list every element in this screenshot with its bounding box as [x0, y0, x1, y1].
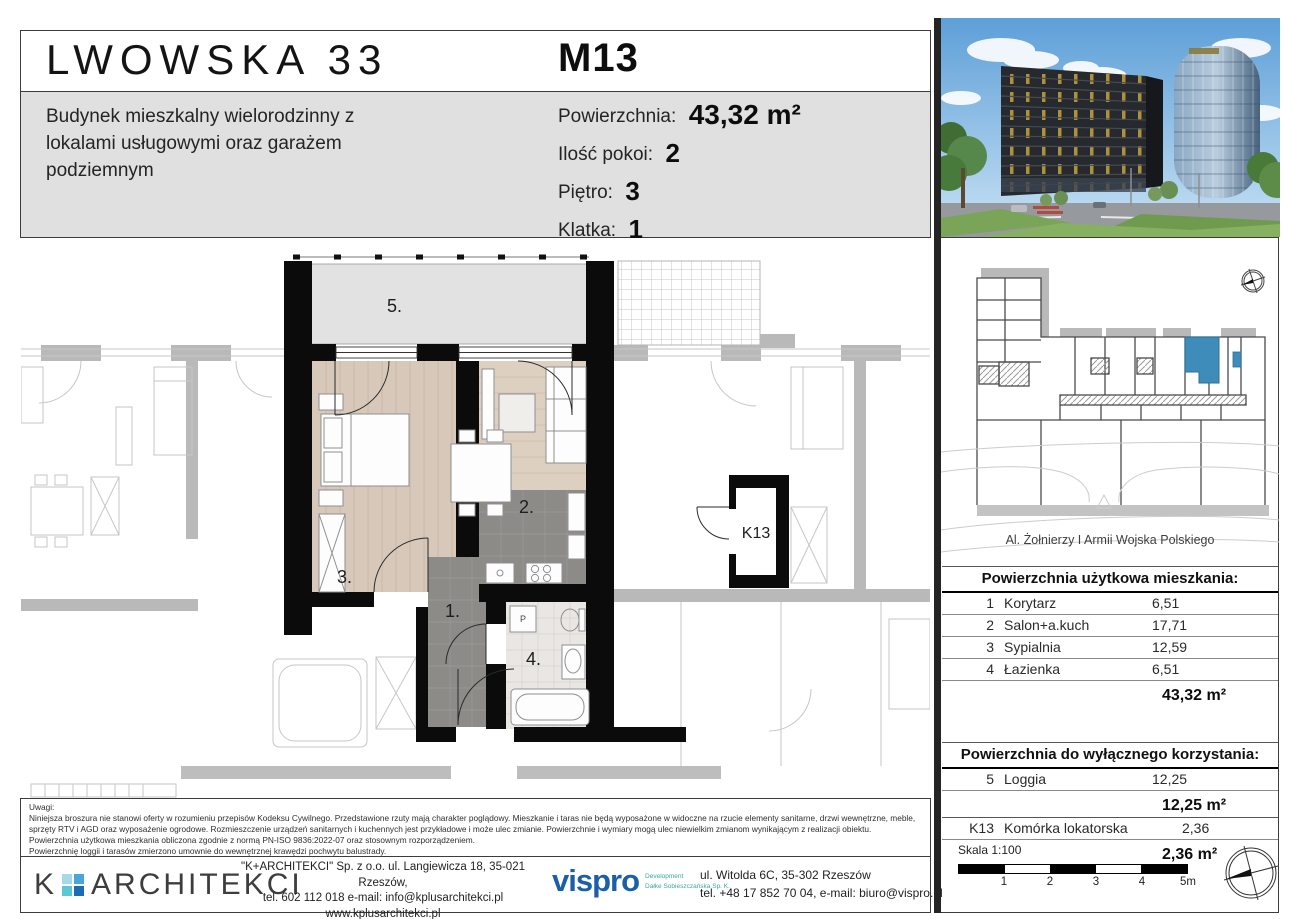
brochure-page: LWOWSKA 33 M13 Budynek mieszkalny wielor… — [0, 0, 1300, 919]
table-row: K13 Komórka lokatorska 2,36 — [942, 817, 1278, 840]
key-plan-area — [941, 240, 1279, 562]
room-label-storage: K13 — [742, 525, 771, 542]
building-photo — [941, 18, 1280, 237]
floor-plan: P 5. 3. 2. 1. 4. K13 — [21, 238, 930, 798]
keyplan-building — [977, 268, 1269, 516]
room-label-corridor: 1. — [445, 601, 460, 621]
exclusive-area-title: Powierzchnia do wyłącznego korzystania: — [942, 742, 1278, 769]
room-label-loggia: 5. — [387, 296, 402, 316]
loggia-subtotal: 12,25 m² — [942, 791, 1278, 817]
window-living — [459, 347, 572, 358]
usable-area-title: Powierzchnia użytkowa mieszkania: — [942, 566, 1278, 593]
scale-bar — [958, 864, 1188, 874]
architect-address: "K+ARCHITEKCI" Sp. z o.o. ul. Langiewicz… — [228, 860, 538, 891]
building-right — [1174, 46, 1260, 198]
developer-contact: ul. Witolda 6C, 35-302 Rzeszów tel. +48 … — [700, 866, 943, 902]
table-row: 1 Korytarz 6,51 — [942, 593, 1278, 615]
architect-contact: "K+ARCHITEKCI" Sp. z o.o. ul. Langiewicz… — [228, 860, 538, 919]
notes-paragraph-1: Niniejsza broszura nie stanowi oferty w … — [29, 813, 922, 846]
architect-phone-email: tel. 602 112 018 e-mail: info@kplusarchi… — [228, 891, 538, 907]
notes-section: Uwagi: Niniejsza broszura nie stanowi of… — [20, 798, 931, 856]
building-left — [1001, 66, 1163, 196]
table-row: 2 Salon+a.kuch 17,71 — [942, 615, 1278, 637]
unit-id: M13 — [558, 36, 639, 81]
table-row: 4 Łazienka 6,51 — [942, 659, 1278, 681]
developer-logo-text: vispro — [552, 868, 639, 894]
floor-plan-area: P 5. 3. 2. 1. 4. K13 — [21, 238, 930, 798]
usable-area-total: 43,32 m² — [942, 681, 1278, 707]
compass-icon — [1222, 844, 1280, 907]
usable-area-table: Powierzchnia użytkowa mieszkania: 1 Kory… — [942, 566, 1278, 707]
architect-website: www.kplusarchitekci.pl — [228, 907, 538, 919]
spec-area: Powierzchnia: 43,32 m² — [558, 99, 918, 131]
spec-floor: Piętro: 3 — [558, 176, 918, 207]
project-title: LWOWSKA 33 — [46, 36, 388, 84]
window-bedroom — [336, 347, 417, 358]
room-label-bathroom: 4. — [526, 649, 541, 669]
scale-ticks: 1 2 3 4 5m — [958, 876, 1198, 890]
architect-logo-k: K — [34, 868, 55, 902]
unit-specs: Powierzchnia: 43,32 m² Ilość pokoi: 2 Pi… — [558, 99, 918, 252]
key-plan — [941, 240, 1279, 562]
compass-icon — [1241, 269, 1265, 293]
scale-label: Skala 1:100 — [958, 843, 1021, 857]
architect-logo-squares-icon — [62, 874, 84, 896]
notes-title: Uwagi: — [29, 802, 922, 813]
developer-phone-email: tel. +48 17 852 70 04, e-mail: biuro@vis… — [700, 884, 943, 902]
street-label: Al. Żołnierzy I Armii Wojska Polskiego — [951, 533, 1269, 547]
washer-mark: P — [520, 614, 526, 624]
column-divider — [934, 18, 941, 913]
developer-address: ul. Witolda 6C, 35-302 Rzeszów — [700, 866, 943, 884]
room-label-bedroom: 3. — [337, 567, 352, 587]
table-row: 3 Sypialnia 12,59 — [942, 637, 1278, 659]
room-label-living: 2. — [519, 497, 534, 517]
project-subtitle: Budynek mieszkalny wielorodzinny z lokal… — [46, 104, 416, 185]
table-row: 5 Loggia 12,25 — [942, 769, 1278, 791]
spec-rooms: Ilość pokoi: 2 — [558, 138, 918, 169]
